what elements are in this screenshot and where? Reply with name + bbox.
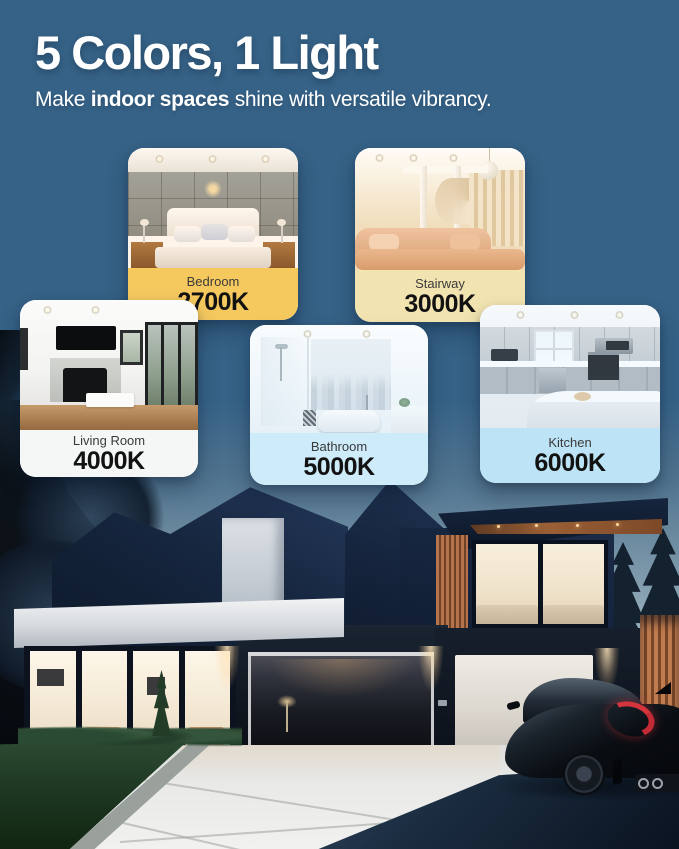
room-label: Stairway (415, 276, 465, 291)
soffit-light-icon (535, 524, 538, 527)
lit-window (543, 544, 605, 624)
recessed-light-icon (449, 154, 458, 162)
bathtub (318, 410, 380, 432)
vanity (391, 406, 428, 433)
glass-doors (145, 322, 198, 410)
product-infographic: 5 Colors, 1 Light Make indoor spaces shi… (0, 0, 679, 849)
room-label: Bedroom (187, 274, 240, 289)
sports-car (505, 666, 679, 800)
page-title: 5 Colors, 1 Light (35, 28, 491, 77)
car-mirror (506, 701, 520, 711)
microwave-window (606, 341, 629, 350)
temperature-band: Living Room 4000K (20, 430, 198, 477)
kelvin-value: 3000K (404, 292, 475, 317)
upper-floor-windows (472, 540, 608, 628)
wall-decor (204, 180, 222, 198)
downlight-glow (418, 646, 444, 692)
window (120, 330, 143, 365)
door-glass (148, 325, 162, 407)
exhaust-tip (652, 778, 663, 789)
lamp-shade (140, 219, 149, 226)
kelvin-value: 6000K (534, 451, 605, 476)
shower-stem (280, 347, 282, 381)
car-wheel (563, 753, 605, 795)
toaster (491, 349, 518, 361)
pillow (201, 224, 228, 240)
wood-slat-accent (436, 535, 468, 629)
subtitle-suffix: shine with versatile vibrancy. (229, 88, 491, 111)
kitchen-photo (480, 305, 660, 428)
picture-window (311, 339, 391, 410)
range (588, 352, 619, 380)
glass-shower (261, 337, 309, 426)
tv (56, 326, 117, 350)
sofa-seat (355, 249, 525, 270)
living-room-photo (20, 300, 198, 430)
car-exhaust (635, 774, 679, 792)
spiral-staircase (435, 178, 469, 224)
dishwasher (539, 368, 566, 393)
room-label: Living Room (73, 433, 145, 448)
lit-window (476, 544, 538, 624)
downlight-glow (214, 646, 240, 692)
kitchen-island (527, 391, 660, 428)
sofa-cushion (450, 234, 480, 250)
bedroom-photo (128, 148, 298, 268)
temperature-card-stairway: Stairway 3000K (355, 148, 525, 322)
city-skyline (311, 373, 391, 410)
lamp (143, 223, 145, 243)
beam (403, 166, 488, 173)
car-vent (613, 759, 622, 785)
garage-light-glow (267, 659, 416, 698)
duvet (155, 247, 271, 268)
door-glass (164, 325, 178, 407)
kelvin-value: 4000K (73, 449, 144, 474)
interior-furniture (476, 605, 538, 624)
credenza (86, 393, 134, 407)
tub-faucet (366, 395, 368, 411)
sofa-cushion (369, 234, 399, 250)
temperature-card-living-room: Living Room 4000K (20, 300, 198, 477)
page-subtitle: Make indoor spaces shine with versatile … (35, 88, 491, 112)
door-glass (181, 325, 195, 407)
bathroom-photo (250, 325, 428, 433)
soffit-light-icon (497, 525, 500, 528)
soffit-light-icon (576, 524, 579, 527)
soffit-light-icon (616, 523, 619, 526)
path-light (286, 702, 288, 732)
interior-furniture (543, 605, 605, 624)
wood-floor (20, 405, 198, 430)
room-label: Bathroom (311, 439, 367, 454)
towel-stool (303, 410, 316, 426)
landscaping-plants (18, 720, 242, 748)
pillow (174, 226, 201, 242)
subtitle-prefix: Make (35, 88, 91, 111)
subtitle-bold: indoor spaces (91, 88, 229, 111)
garage-keypad (438, 700, 447, 706)
temperature-band: Kitchen 6000K (480, 428, 660, 483)
temperature-band: Bathroom 5000K (250, 433, 428, 485)
lamp (281, 223, 283, 243)
window (20, 328, 28, 370)
recessed-light-icon (516, 311, 525, 319)
wall-art (37, 669, 63, 687)
room-label: Kitchen (548, 435, 591, 450)
lower-cabinets (480, 367, 660, 394)
dark-garage-door (248, 652, 434, 749)
temperature-card-kitchen: Kitchen 6000K (480, 305, 660, 483)
exhaust-tip (638, 778, 649, 789)
temperature-card-bedroom: Bedroom 2700K (128, 148, 298, 320)
recessed-light-icon (261, 155, 270, 163)
bread (574, 392, 591, 401)
stairway-photo (355, 148, 525, 270)
recessed-light-icon (570, 311, 579, 319)
driveway-warm-glow (180, 745, 500, 781)
temperature-card-bathroom: Bathroom 5000K (250, 325, 428, 485)
car-spoiler (655, 682, 671, 694)
kelvin-value: 5000K (303, 455, 374, 480)
recessed-light-icon (615, 311, 624, 319)
recessed-light-icon (208, 155, 217, 163)
header: 5 Colors, 1 Light Make indoor spaces shi… (35, 28, 491, 112)
pillow (228, 226, 255, 242)
